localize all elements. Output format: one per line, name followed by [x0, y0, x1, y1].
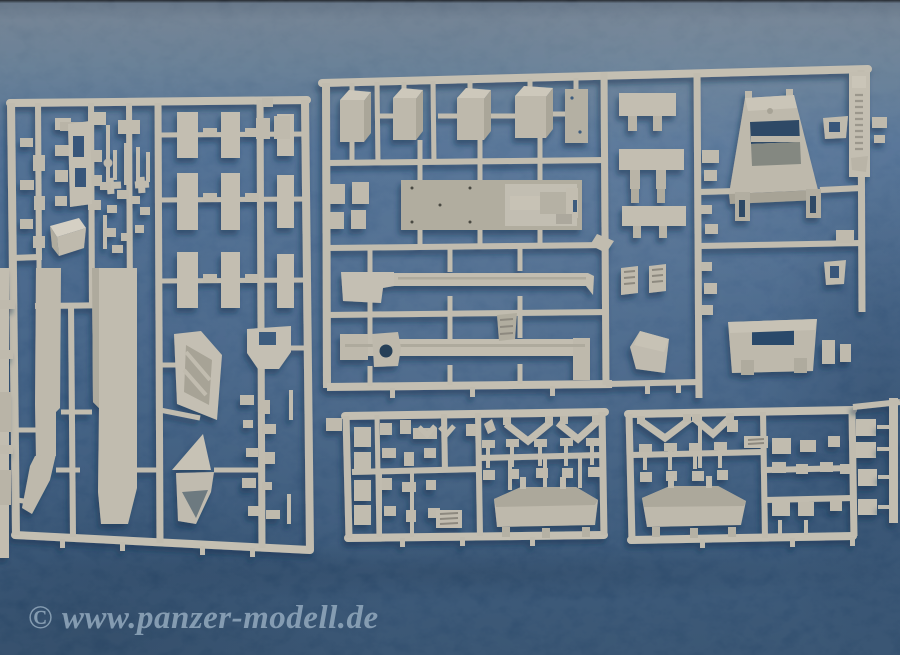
svg-text:© www.panzer-modell.de: © www.panzer-modell.de — [28, 600, 379, 636]
